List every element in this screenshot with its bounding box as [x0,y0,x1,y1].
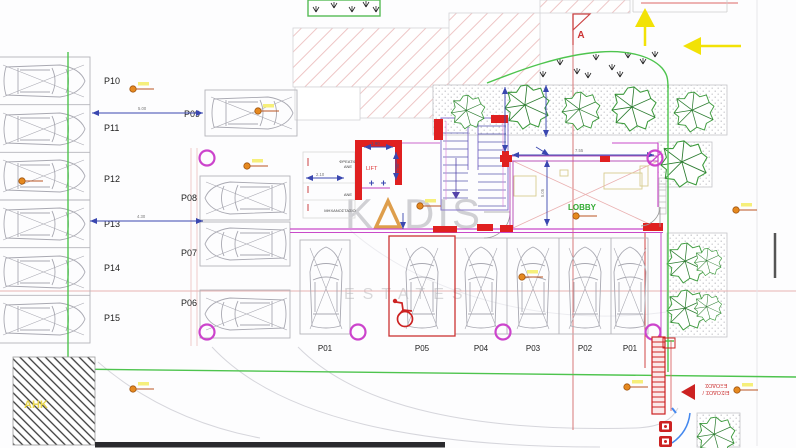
survey-circle [200,151,215,166]
lift-service-rooms: ΦΡΕΑΤΙΟ ΑΝΕ ΑΝΕ ΜΗΧΑΝΟΣΤΑΣΙΟ [303,152,357,218]
svg-text:ΕΞΟΔΟΣ: ΕΞΟΔΟΣ [704,382,727,388]
stall-label: P10 [104,76,120,86]
boundary-wall-bar [95,442,445,448]
parking-sign-icon [659,436,672,447]
stall-label: P03 [526,344,541,353]
car-icon [3,113,85,145]
yellow-up-arrow-icon [635,8,655,27]
car-icon [205,228,287,260]
watermark: K DIS ESTATES [344,190,483,303]
car-icon [465,247,497,329]
car-icon [3,208,85,240]
lobby-label: LOBBY [568,203,597,212]
stall-label: P05 [415,344,430,353]
dim-text: 2.10 [316,172,325,177]
stall-label: P15 [104,313,120,323]
stall-label: P01 [318,344,333,353]
svg-text:ΕΙΣΟΔΟΣ /: ΕΙΣΟΔΟΣ / [702,389,730,395]
ahk-label: ΑΗΚ [24,399,48,411]
dim-text: 1.90 [371,141,380,146]
dim-text: 4.30 [137,214,146,219]
car-icon [3,303,85,335]
stall-label: P06 [181,298,197,308]
car-icon [3,65,85,97]
entrance-arrow-icon [681,384,695,400]
survey-circle [351,325,366,340]
lift-label: LIFT [366,166,378,172]
stall-label: P01 [623,344,638,353]
car-icon [406,247,438,329]
stall-label: P04 [474,344,489,353]
stall-label: P13 [104,219,120,229]
car-icon [614,247,646,329]
yellow-left-arrow-icon [683,37,701,55]
car-icon [205,298,287,330]
dim-text: 5.05 [540,188,545,197]
entrance-label: ΕΙΣΟΔΟΣ / ΕΞΟΔΟΣ [702,382,730,395]
car-icon [3,160,85,192]
door-marks [369,181,386,186]
yellow-arrows [635,8,741,55]
ahk-utility-box: ΑΗΚ [13,357,95,445]
bottom-stall-labels: P01 P05 P04 P03 P02 P01 [318,344,638,353]
room-label: ΑΝΕ [344,164,353,169]
room-label: ΑΝΕ [344,192,353,197]
site-plan-drawing: K DIS ESTATES P10 P11 P12 P13 P14 P15 [0,0,796,448]
stall-label: P14 [104,263,120,273]
stall-label: P07 [181,248,197,258]
planter-box [308,0,380,16]
left-parking-stalls [0,57,90,343]
car-icon [517,247,549,329]
section-label: A [577,30,584,41]
parking-sign-icon [659,421,672,432]
survey-circle [200,325,215,340]
survey-circle [496,325,511,340]
dim-text: 1.90 [395,163,400,172]
stall-label: P12 [104,174,120,184]
section-marker-a: A [573,14,590,45]
car-icon [3,256,85,288]
watermark-delta-icon [376,201,400,227]
car-icon [205,182,287,214]
stall-label: P11 [104,123,119,133]
dim-text: 7.55 [575,148,584,153]
car-icon [569,247,601,329]
floor-plan-canvas: K DIS ESTATES P10 P11 P12 P13 P14 P15 [0,0,796,448]
stall-label: P09 [184,109,200,119]
car-icon [310,247,342,329]
door-swing-arc [672,413,690,443]
room-label: ΜΗΧΑΝΟΣΤΑΣΙΟ [324,208,356,213]
car-icon [211,97,293,129]
stall-label: P02 [578,344,593,353]
dim-text: 5.00 [138,106,147,111]
stall-label: P08 [181,193,197,203]
